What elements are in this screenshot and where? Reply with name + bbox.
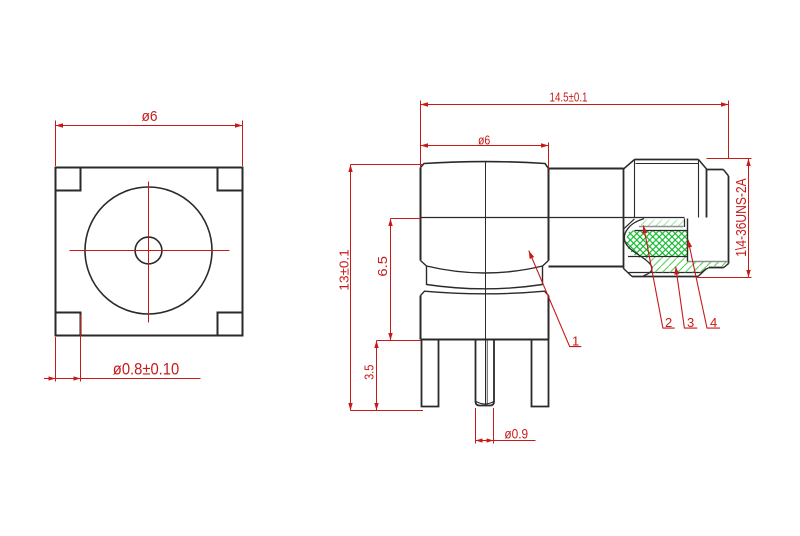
svg-text:3.5: 3.5	[361, 365, 376, 380]
svg-text:1\4-36UNS-2A: 1\4-36UNS-2A	[733, 178, 750, 257]
svg-text:6.5: 6.5	[375, 256, 390, 277]
svg-text:2: 2	[665, 315, 672, 330]
svg-text:4: 4	[710, 315, 717, 330]
svg-text:1: 1	[572, 334, 579, 349]
svg-text:3: 3	[687, 315, 694, 330]
svg-text:ø0.9: ø0.9	[504, 426, 528, 442]
svg-text:ø0.8±0.10: ø0.8±0.10	[113, 360, 179, 379]
svg-text:ø6: ø6	[142, 108, 158, 125]
svg-text:13±0.1: 13±0.1	[337, 249, 352, 290]
svg-text:14.5±0.1: 14.5±0.1	[550, 90, 588, 104]
svg-text:ø6: ø6	[478, 134, 490, 148]
